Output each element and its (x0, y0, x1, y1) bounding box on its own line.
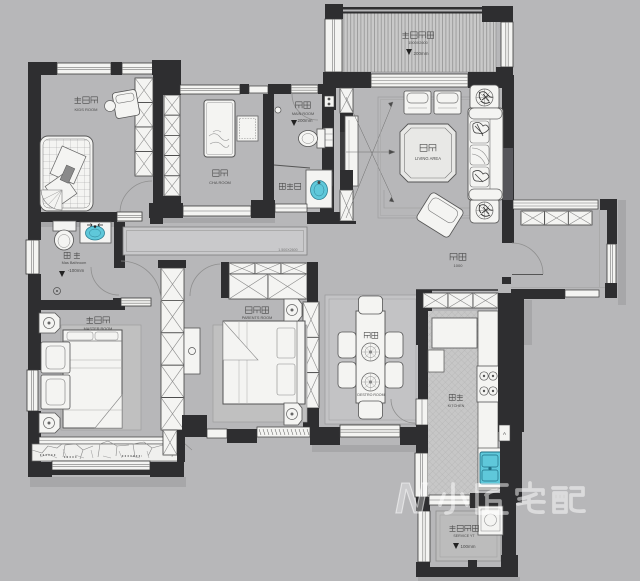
svg-text:LIVING AREA: LIVING AREA (415, 156, 441, 161)
svg-text:200mm: 200mm (413, 51, 428, 56)
svg-text:-100mm: -100mm (68, 268, 85, 273)
svg-text:N: N (395, 474, 428, 523)
svg-text:A: A (503, 431, 506, 436)
svg-text:MASTER ROOM: MASTER ROOM (84, 327, 113, 331)
svg-text:KIDS ROOM: KIDS ROOM (75, 107, 98, 112)
svg-text:1.500X2600: 1.500X2600 (278, 248, 297, 252)
svg-text:MAIN ROOM: MAIN ROOM (292, 112, 314, 116)
svg-text:PARENTS ROOM: PARENTS ROOM (242, 316, 273, 320)
svg-text:KITCHEN: KITCHEN (448, 404, 465, 408)
svg-text:200mm: 200mm (297, 118, 312, 123)
svg-text:100mm: 100mm (460, 544, 475, 549)
svg-text:SERVICE YT: SERVICE YT (453, 534, 475, 538)
svg-text:1000: 1000 (454, 263, 464, 268)
svg-text:Mas Bathroom: Mas Bathroom (62, 261, 87, 265)
svg-text:CHA ROOM: CHA ROOM (209, 180, 231, 185)
svg-text:DESTRO ROOM: DESTRO ROOM (357, 393, 384, 397)
svg-text:1500X2600: 1500X2600 (408, 41, 427, 45)
